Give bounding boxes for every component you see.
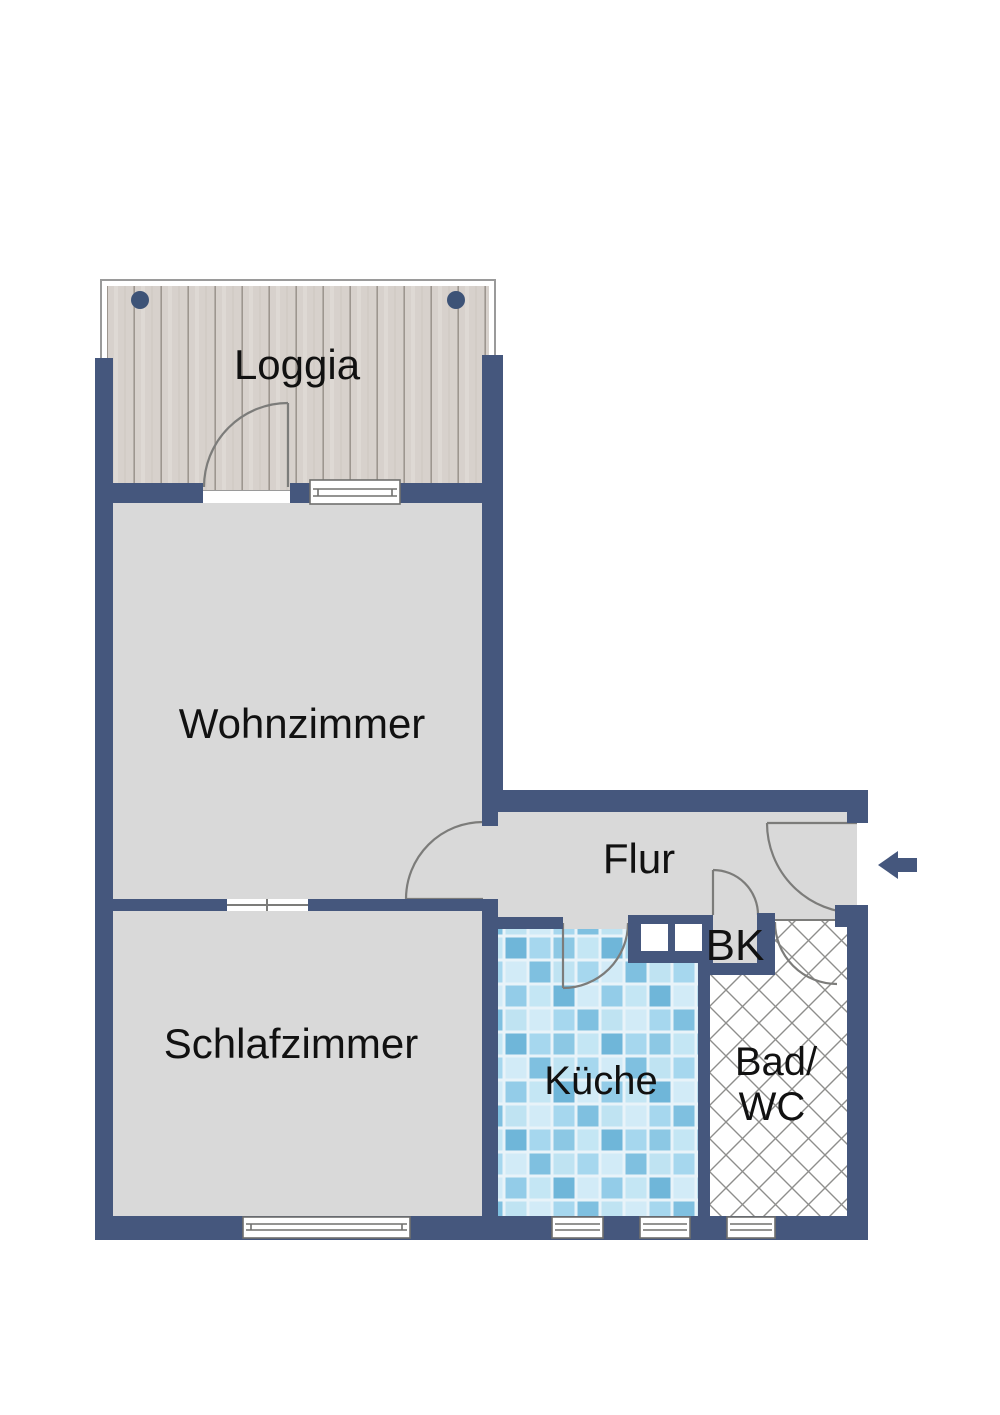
bk-shaft-cell: [675, 924, 702, 951]
entrance-arrow-icon: [878, 851, 917, 879]
wohnzimmer-label: Wohnzimmer: [179, 700, 426, 747]
wall-schlaf-kueche: [482, 899, 498, 1240]
window-loggia: [310, 480, 400, 504]
window-kueche-right: [640, 1217, 690, 1238]
kueche-label: Küche: [544, 1059, 657, 1103]
wall-wohn-schlaf-left: [95, 899, 227, 911]
bk-shaft-symbol: [628, 915, 713, 963]
wall-loggia-left: [95, 483, 203, 503]
bad-label-line2: WC: [739, 1085, 806, 1129]
window-kueche-left: [552, 1217, 603, 1238]
mounting-pin-icon: [131, 291, 149, 309]
schlafzimmer-label: Schlafzimmer: [164, 1020, 418, 1067]
floor-plan-page: Loggia Wohnzimmer Schlafzimmer Flur Küch…: [0, 0, 1000, 1415]
bk-shaft-cell: [641, 924, 668, 951]
wall-flur-top: [482, 790, 868, 812]
wall-wohnzimmer-door-stub: [482, 810, 498, 826]
wall-entrance-top-stub: [847, 790, 868, 823]
floor-plan-svg: Loggia Wohnzimmer Schlafzimmer Flur Küch…: [0, 0, 1000, 1415]
loggia-floor: [107, 286, 489, 490]
bad-label-line1: Bad/: [735, 1040, 818, 1084]
flur-label: Flur: [603, 835, 675, 882]
wall-loggia-mid: [290, 483, 310, 503]
kueche-door-opening: [563, 915, 628, 929]
window-schlafzimmer: [243, 1217, 410, 1238]
entrance-recess-floor: [847, 823, 857, 905]
wohnzimmer-door-opening: [482, 825, 498, 899]
loggia-label: Loggia: [234, 341, 361, 388]
bk-label: BK: [706, 921, 765, 970]
window-bad: [727, 1217, 775, 1238]
wall-kueche-top-left: [498, 917, 563, 929]
wall-right-lower: [847, 905, 868, 1240]
wall-kueche-bad: [698, 962, 710, 1216]
mounting-pin-icon: [447, 291, 465, 309]
wall-right-upper: [482, 355, 503, 792]
wall-wohn-schlaf-right: [308, 899, 482, 911]
